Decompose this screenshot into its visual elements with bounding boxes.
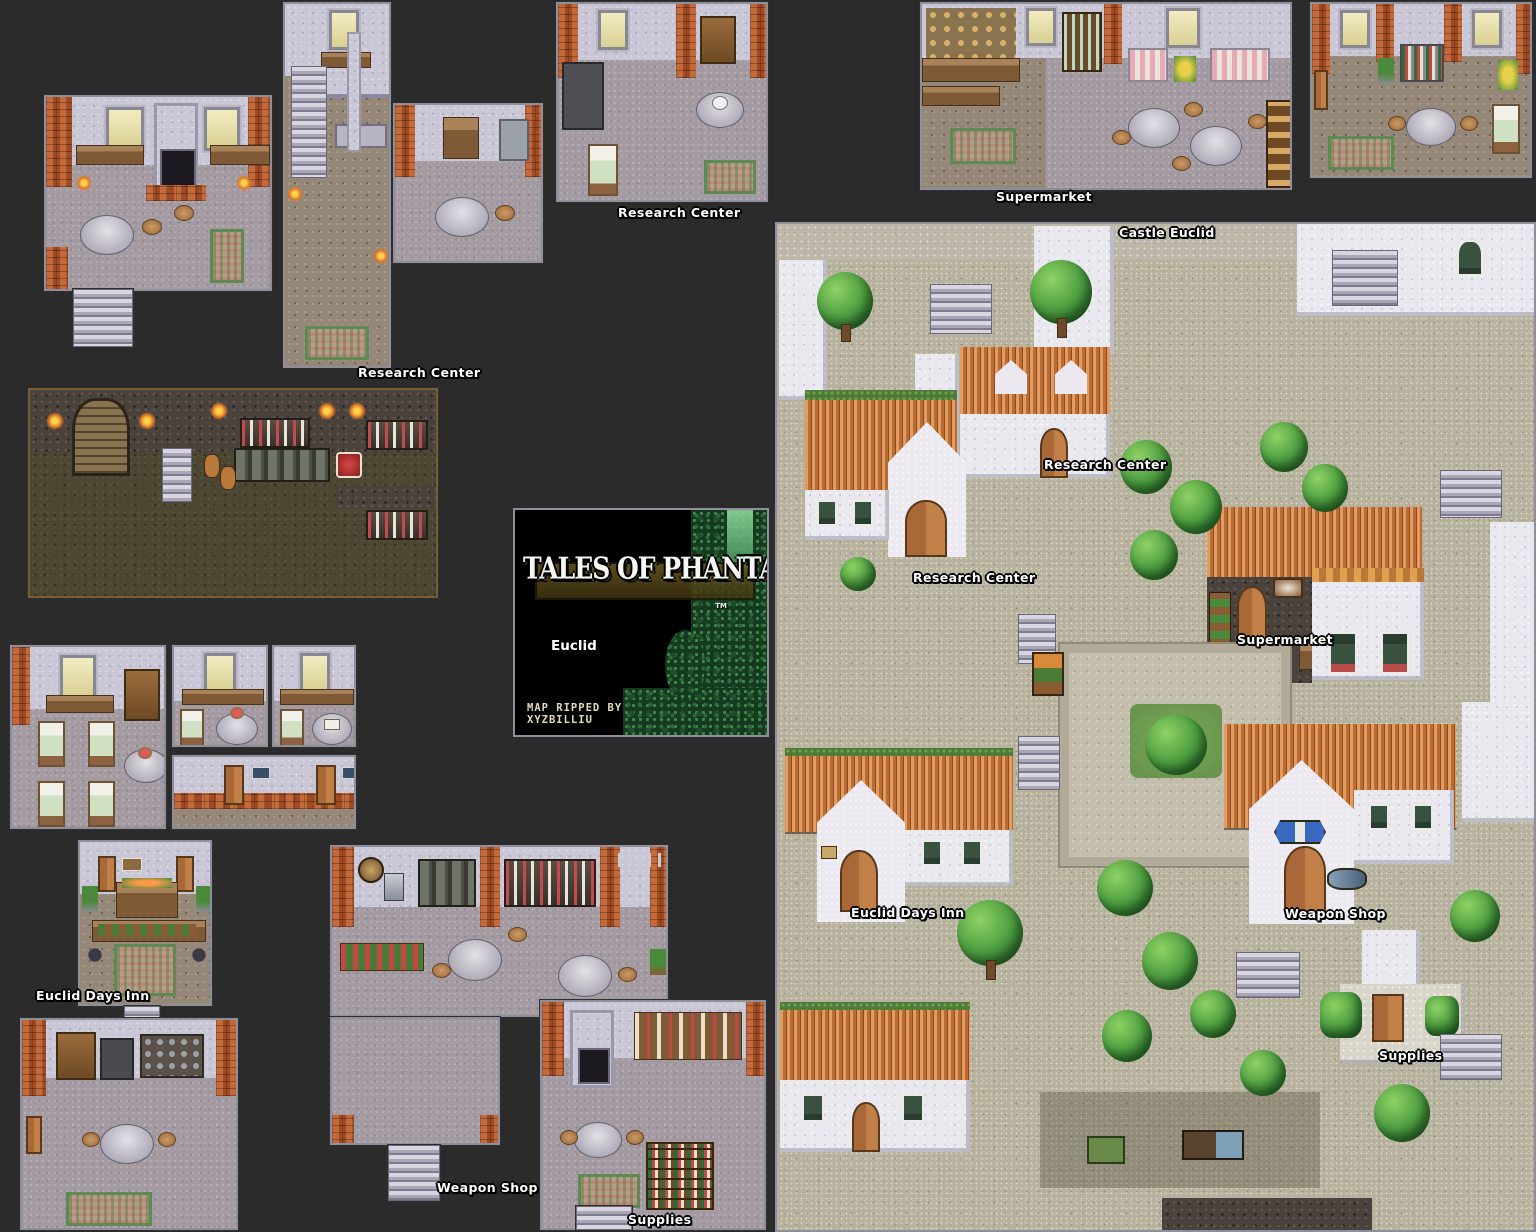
fish-sign [1327,868,1367,890]
supermarket-roof [1207,507,1422,577]
barrel-shelf [418,859,476,907]
panel-weapon-shop-lower-wing [330,1017,500,1145]
tower-window [1457,240,1483,276]
brick-pillar [480,847,500,927]
tree [1142,932,1198,990]
window [802,1094,824,1122]
label-castle-euclid: Castle Euclid [1119,225,1215,240]
panel-inn-hallway [172,755,356,829]
tree [1170,480,1222,534]
fireplace-brick-base [146,185,206,201]
staircase [291,66,327,178]
stool [626,1130,644,1145]
stool [142,219,162,235]
inn-sign [821,846,837,859]
round-table [574,1122,622,1158]
yellow-flowers [1498,60,1518,90]
tree-trunk [841,324,851,342]
panel-weapon-shop-main [330,845,668,1017]
panel-inn-bedroom-small-1 [172,645,268,747]
bed [38,721,65,767]
produce-counter [922,58,1020,82]
brick-pillar [1104,4,1122,64]
window [1472,10,1502,48]
lamp-icon [190,946,208,964]
town-stairs [1440,470,1502,518]
alcove-shelf [366,510,428,540]
inn-door [840,850,878,912]
swords-on-wall [618,853,664,867]
label-research-center-large: Research Center [358,365,480,380]
tree [1302,464,1348,512]
torch-icon [348,402,366,420]
weapon-shelf [240,418,310,448]
brick-pillar [676,4,696,78]
stool [1460,116,1478,131]
potted-plant [1378,58,1394,84]
round-table [1406,108,1456,146]
stool [432,963,451,978]
door [98,856,116,892]
produce-counter [922,86,1000,106]
sideboard [182,689,264,705]
bed [1492,104,1520,154]
round-table [435,197,489,237]
house-door [852,1102,880,1152]
tree [1030,260,1092,324]
bookshelf [1400,44,1444,82]
cabinet [124,669,160,721]
label-supermarket-interior: Supermarket [996,189,1092,204]
stool [1184,102,1203,117]
round-table [1190,126,1242,166]
label-supplies-interior: Supplies [628,1212,691,1227]
market-kiosk [1032,652,1064,696]
stool [82,1132,100,1147]
bed [38,781,65,827]
panel-supplies-entrance-stairs [576,1206,632,1230]
window [902,1094,924,1122]
counter-cabinets [234,448,330,482]
stool [1248,114,1267,129]
window [300,653,330,693]
lamp-icon [86,946,104,964]
tree [957,900,1023,966]
ivy [1425,996,1459,1036]
drum [336,452,362,478]
tree [1145,715,1207,775]
jar [204,454,220,478]
stool [1112,130,1131,145]
bottle-cabinet [1062,12,1102,72]
panel-research-center-entry-stairs [73,289,133,347]
town-stairs [1440,1034,1502,1080]
sideboard [280,689,354,705]
plaza-stairs [1018,736,1060,790]
credit-line-1: MAP RIPPED BY [527,702,622,714]
lamp-icon [287,186,303,202]
flower-window [1329,632,1357,674]
location-name: Euclid [551,638,597,654]
panel-house-interior [1310,2,1532,178]
ripper-credit: MAP RIPPED BY XYZBILLIU [527,702,622,726]
label-town-research-center-lower: Research Center [913,570,1035,585]
brick-pillar [542,1002,564,1076]
brick-pillar [1444,4,1462,62]
torch-icon [46,412,64,430]
flower-counter [340,943,424,971]
carpet [1328,136,1394,170]
stove [100,1038,134,1080]
stool [158,1132,176,1147]
label-weapon-shop-interior: Weapon Shop [437,1180,538,1195]
brick-pillar [46,247,68,291]
castle-stairs [1332,250,1398,306]
flower-stand [1128,48,1168,82]
stool [560,1130,578,1145]
window [962,840,982,866]
street-shade [1040,1092,1320,1188]
bottom-wall [1162,1198,1372,1230]
window [204,653,236,693]
town-stairs [1236,952,1300,998]
tree [1097,860,1153,916]
panel-inn-kitchen [20,1018,238,1230]
desk-plants [98,924,196,936]
window [60,655,96,699]
tree [1102,1010,1152,1062]
stool [495,205,515,221]
stool [1388,116,1406,131]
label-town-research-center-upper: Research Center [1044,457,1166,472]
flower-vase [230,707,244,719]
carpet [578,1174,640,1208]
tree [1190,990,1236,1038]
tree-trunk [986,960,996,980]
tree [1240,1050,1286,1096]
terrace-wall [1462,702,1536,822]
room-sign [252,767,270,779]
door [224,765,244,805]
storefront-picture [1273,578,1303,598]
brick-pillar [480,1115,500,1145]
label-town-weapon-shop: Weapon Shop [1285,906,1386,921]
lamp-icon [373,248,389,264]
weapon-shelf [366,420,428,450]
stool [1172,156,1191,171]
bed [88,721,115,767]
tree [1130,530,1178,580]
cabinet [700,16,736,64]
flower-window [1381,632,1409,674]
stove-counter [562,62,604,130]
credit-line-2: XYZBILLIU [527,714,622,726]
bed [280,709,304,747]
torch-icon [318,402,336,420]
kettle [712,96,728,110]
panel-research-center-small [556,2,768,202]
game-logo: TALES OF PHANTASIA [523,551,761,585]
tree [1260,422,1308,472]
tree-trunk [1057,318,1067,338]
round-table [558,955,612,997]
window [1340,10,1370,48]
potted-plant [82,886,98,912]
room-sign [342,767,356,779]
carpet [704,160,756,194]
label-research-center-small: Research Center [618,205,740,220]
round-table [80,215,134,255]
panel-armory-interior [28,388,438,598]
staircase [162,448,192,502]
label-town-euclid-days-inn: Euclid Days Inn [851,905,965,920]
window [1166,8,1200,48]
lamp-icon [236,175,252,191]
panel-supplies-interior [540,1000,766,1230]
brick-pillar [332,847,354,927]
shield-sign [1274,820,1326,844]
brick-pillar [1376,4,1394,62]
jungle-foliage [665,630,705,700]
map-sprite-sheet: Research Center TALES OF PHANTASIA TM Eu… [0,0,1536,1232]
stool [508,927,527,942]
brick-pillar [248,97,272,187]
stool [174,205,194,221]
brick-pillar [12,647,30,725]
potted-plant [196,886,212,912]
window [817,500,837,526]
arched-bookshelf [72,398,130,476]
yellow-flowers [1174,56,1196,82]
research-center-roof [960,347,1110,414]
house-roof [780,1010,970,1080]
carpet [305,326,369,360]
panel-research-center-room-right [393,103,543,263]
potted-plant [650,949,666,975]
armor-stand [384,873,404,901]
round-table [1128,108,1180,148]
lamp-icon [76,175,92,191]
carpet [950,128,1016,164]
brick-pillar [332,1115,354,1145]
ivy [1320,992,1362,1038]
panel-supermarket-interior [920,2,1292,190]
brick-pillar [1312,4,1330,74]
bread-shelf [1266,100,1292,188]
carpet [210,229,244,283]
wall-column [779,260,827,400]
brick-pillar [395,105,415,177]
tree [1450,890,1500,942]
kitchen-sink [499,119,529,161]
brick-pillar [1516,4,1532,74]
research-center-door-2 [905,500,947,557]
altar-table [335,124,387,148]
stool [618,967,637,982]
panel-inn-bedroom-large [10,645,166,829]
label-inn-lobby: Euclid Days Inn [36,988,150,1003]
crate [1087,1136,1125,1164]
brick-pillar [600,847,620,927]
brick-pillar [746,1002,766,1076]
title-card: TALES OF PHANTASIA TM Euclid MAP RIPPED … [513,508,769,737]
window [853,500,873,526]
brick-pillar [216,1020,238,1096]
hanging-produce [926,8,1016,58]
round-table [100,1124,154,1164]
window [1026,8,1056,46]
tree [1374,1084,1430,1142]
shield-display [358,857,384,883]
door [1314,70,1328,110]
shelf [321,52,371,68]
panel-inn-lobby [78,840,212,1006]
sideboard [210,145,270,165]
window [598,10,628,50]
bed [588,144,618,196]
label-town-supermarket: Supermarket [1237,632,1333,647]
bush [840,557,876,591]
town-stairs [930,284,992,334]
fireplace-hearth [160,149,196,187]
door [316,765,336,805]
panel-research-center-corridor [283,2,391,368]
panel-town-map: Castle Euclid Research Center Research C… [775,222,1536,1232]
panel-research-center-room-left [44,95,272,291]
pots-shelf [140,1034,204,1078]
alcove-wall [336,486,438,508]
fireplace-hearth [578,1048,610,1084]
bed [88,781,115,827]
panel-inn-bedroom-small-2 [272,645,356,747]
inn-sign [122,858,142,871]
door [26,1116,42,1154]
window [1413,804,1433,830]
label-town-supplies: Supplies [1379,1048,1442,1063]
jar [220,466,236,490]
round-table [448,939,502,981]
door [176,856,194,892]
flower-vase [138,747,152,759]
torch-icon [138,412,156,430]
brick-pillar [750,4,768,78]
crate-sink [1182,1130,1244,1160]
cabinet [443,117,479,159]
trademark: TM [715,602,727,610]
carpet [66,1192,152,1226]
flower-stand [1210,48,1270,82]
pillar [347,32,361,152]
weapon-shop-door [1284,846,1326,912]
bookshelf [646,1142,714,1210]
tree [817,272,873,330]
weapon-shelf [504,859,596,907]
sideboard [46,695,114,713]
wall [558,4,768,60]
jungle-foliage [623,688,769,737]
supplies-door [1372,994,1404,1042]
open-book [324,719,340,730]
window [922,840,942,866]
goods-shelf [634,1012,742,1060]
brick-pillar [46,97,72,187]
bed [180,709,204,747]
panel-weapon-shop-entrance-stairs [388,1145,440,1201]
brick-pillar [22,1020,46,1096]
window [1369,804,1389,830]
sideboard [76,145,144,165]
cupboard [56,1032,96,1080]
torch-icon [210,402,228,420]
flower-box [122,878,172,888]
